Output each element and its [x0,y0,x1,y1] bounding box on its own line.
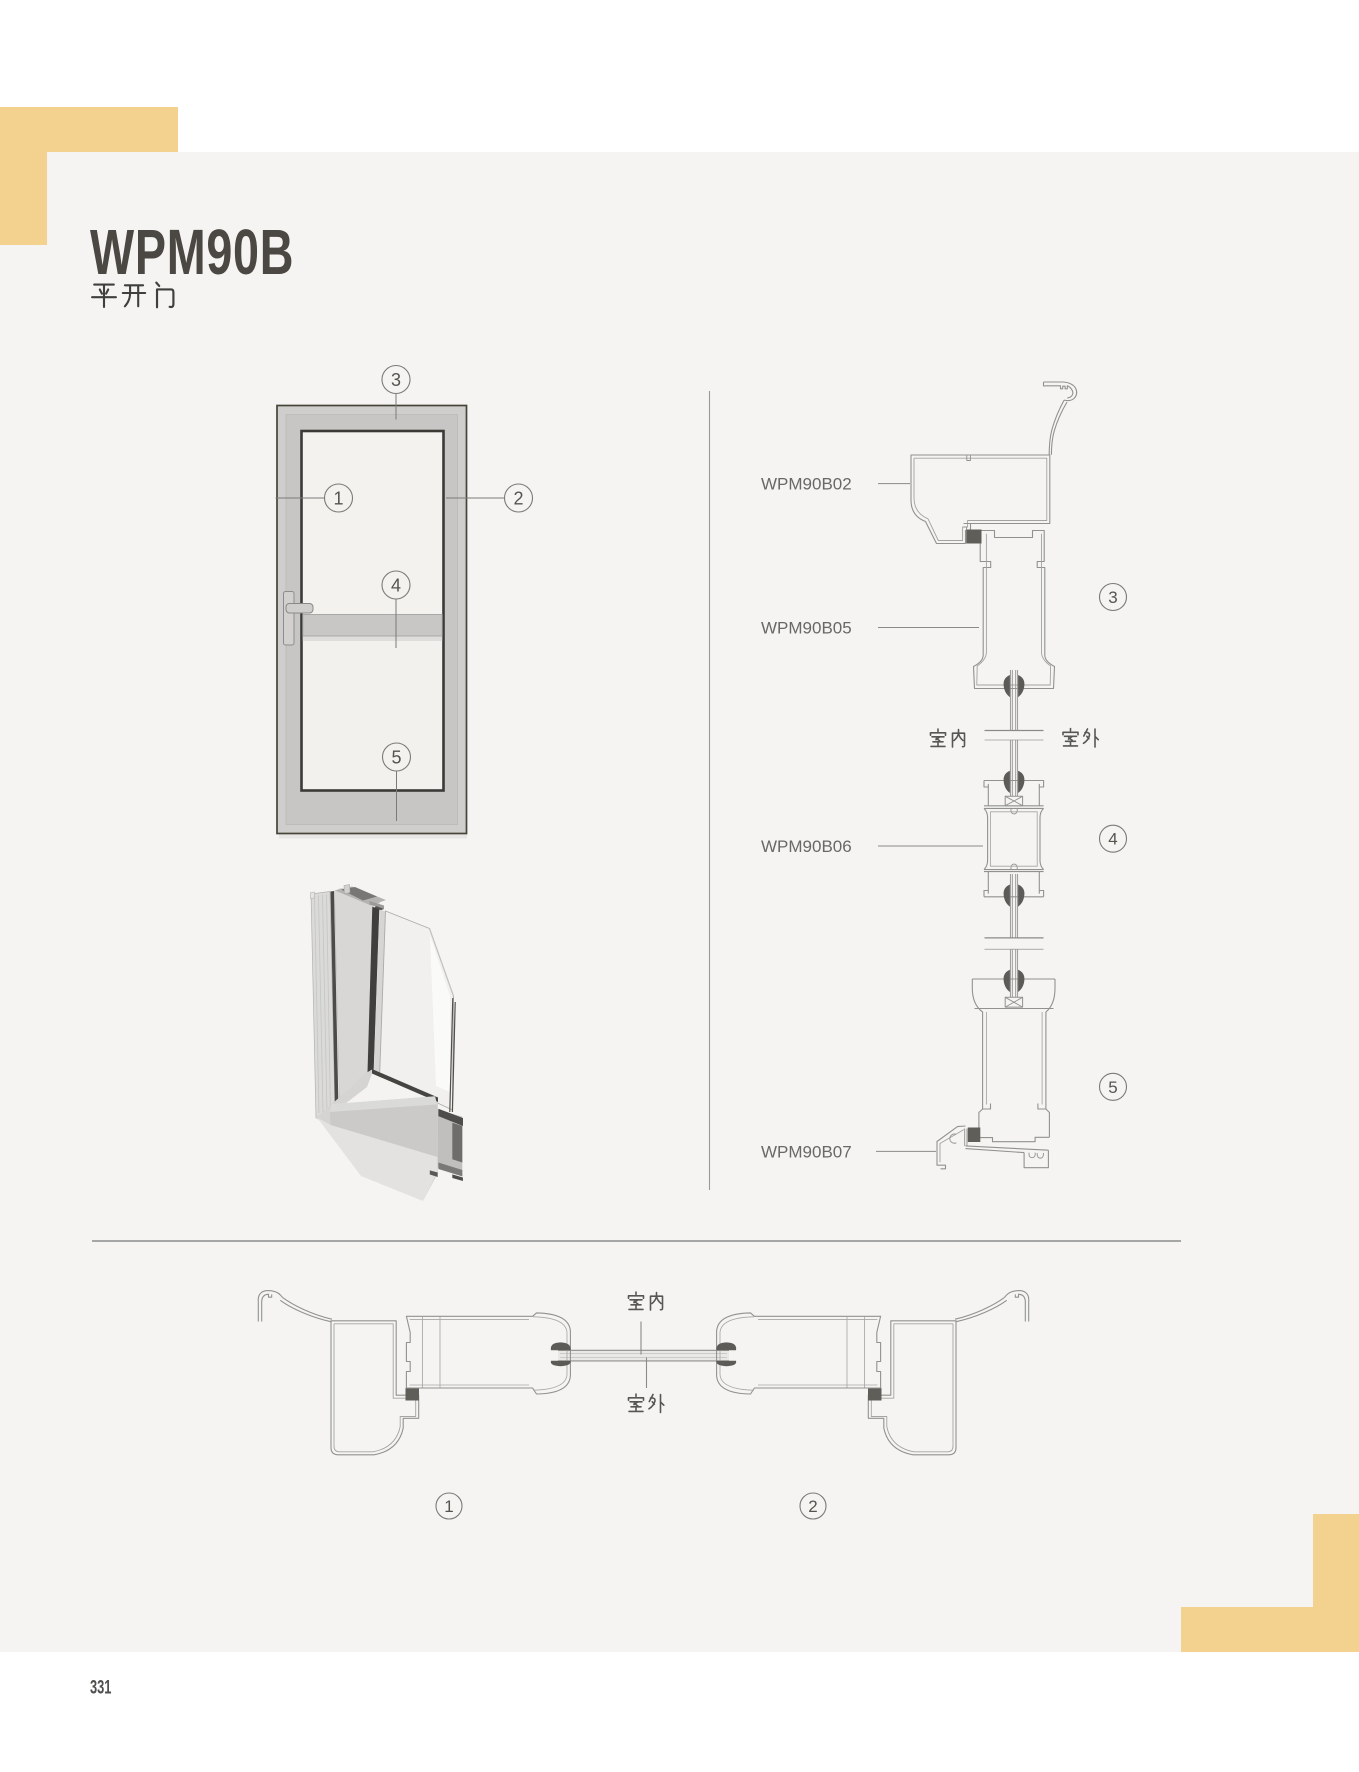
svg-text:5: 5 [391,748,401,768]
svg-text:3: 3 [1108,588,1117,607]
svg-text:WPM90B02: WPM90B02 [761,475,852,494]
svg-text:2: 2 [808,1497,817,1516]
svg-text:WPM90B07: WPM90B07 [761,1143,852,1162]
svg-text:WPM90B: WPM90B [90,216,294,288]
svg-text:WPM90B05: WPM90B05 [761,619,852,638]
svg-text:2: 2 [513,489,523,509]
svg-text:WPM90B06: WPM90B06 [761,837,852,856]
svg-text:3: 3 [391,370,401,390]
svg-text:331: 331 [90,1676,111,1698]
svg-text:4: 4 [1108,830,1117,849]
svg-text:1: 1 [444,1497,453,1516]
svg-text:4: 4 [391,576,401,596]
svg-text:1: 1 [333,489,343,509]
svg-text:5: 5 [1108,1078,1117,1097]
